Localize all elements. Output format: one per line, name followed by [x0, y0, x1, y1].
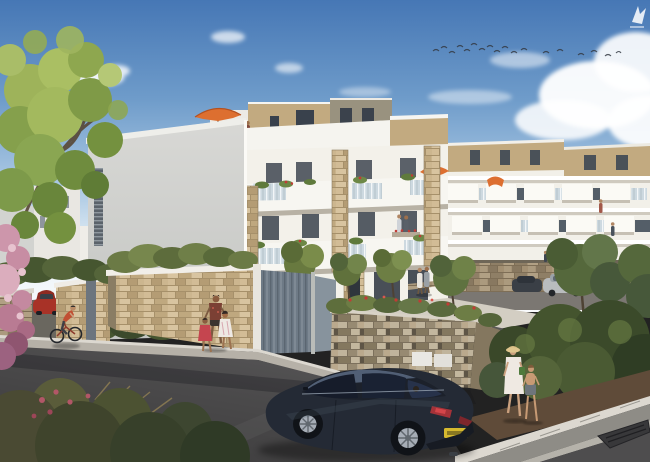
rear-wheel: [391, 421, 426, 456]
right-building-balcony-row: [452, 216, 650, 235]
utility-box: [434, 354, 452, 367]
side-mirror: [303, 387, 308, 390]
architectural-rendering: Architectural rendering: modern white ap…: [0, 0, 650, 462]
right-building-attic-tan-2: [564, 146, 650, 176]
side-window: [362, 373, 406, 398]
stone-pier: [424, 146, 440, 266]
right-building-balcony-row: [448, 184, 647, 203]
rendering-canvas: Architectural rendering: modern white ap…: [0, 0, 650, 462]
exhaust: [449, 452, 458, 456]
wall-gray-pillar: [86, 280, 96, 342]
utility-box: [412, 352, 432, 366]
